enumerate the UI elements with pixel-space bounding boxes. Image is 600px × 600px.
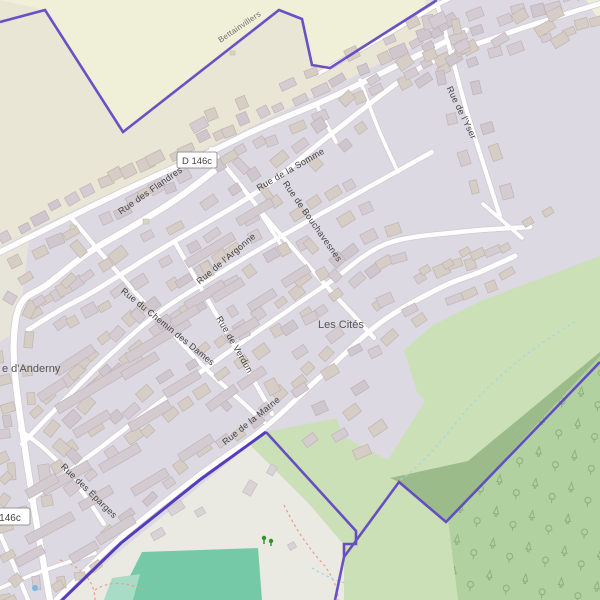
svg-text:D 146c: D 146c — [182, 156, 212, 167]
svg-text:e d'Anderny: e d'Anderny — [2, 363, 61, 375]
svg-text:D 146c: D 146c — [0, 513, 21, 524]
svg-text:Les Cités: Les Cités — [318, 319, 364, 331]
